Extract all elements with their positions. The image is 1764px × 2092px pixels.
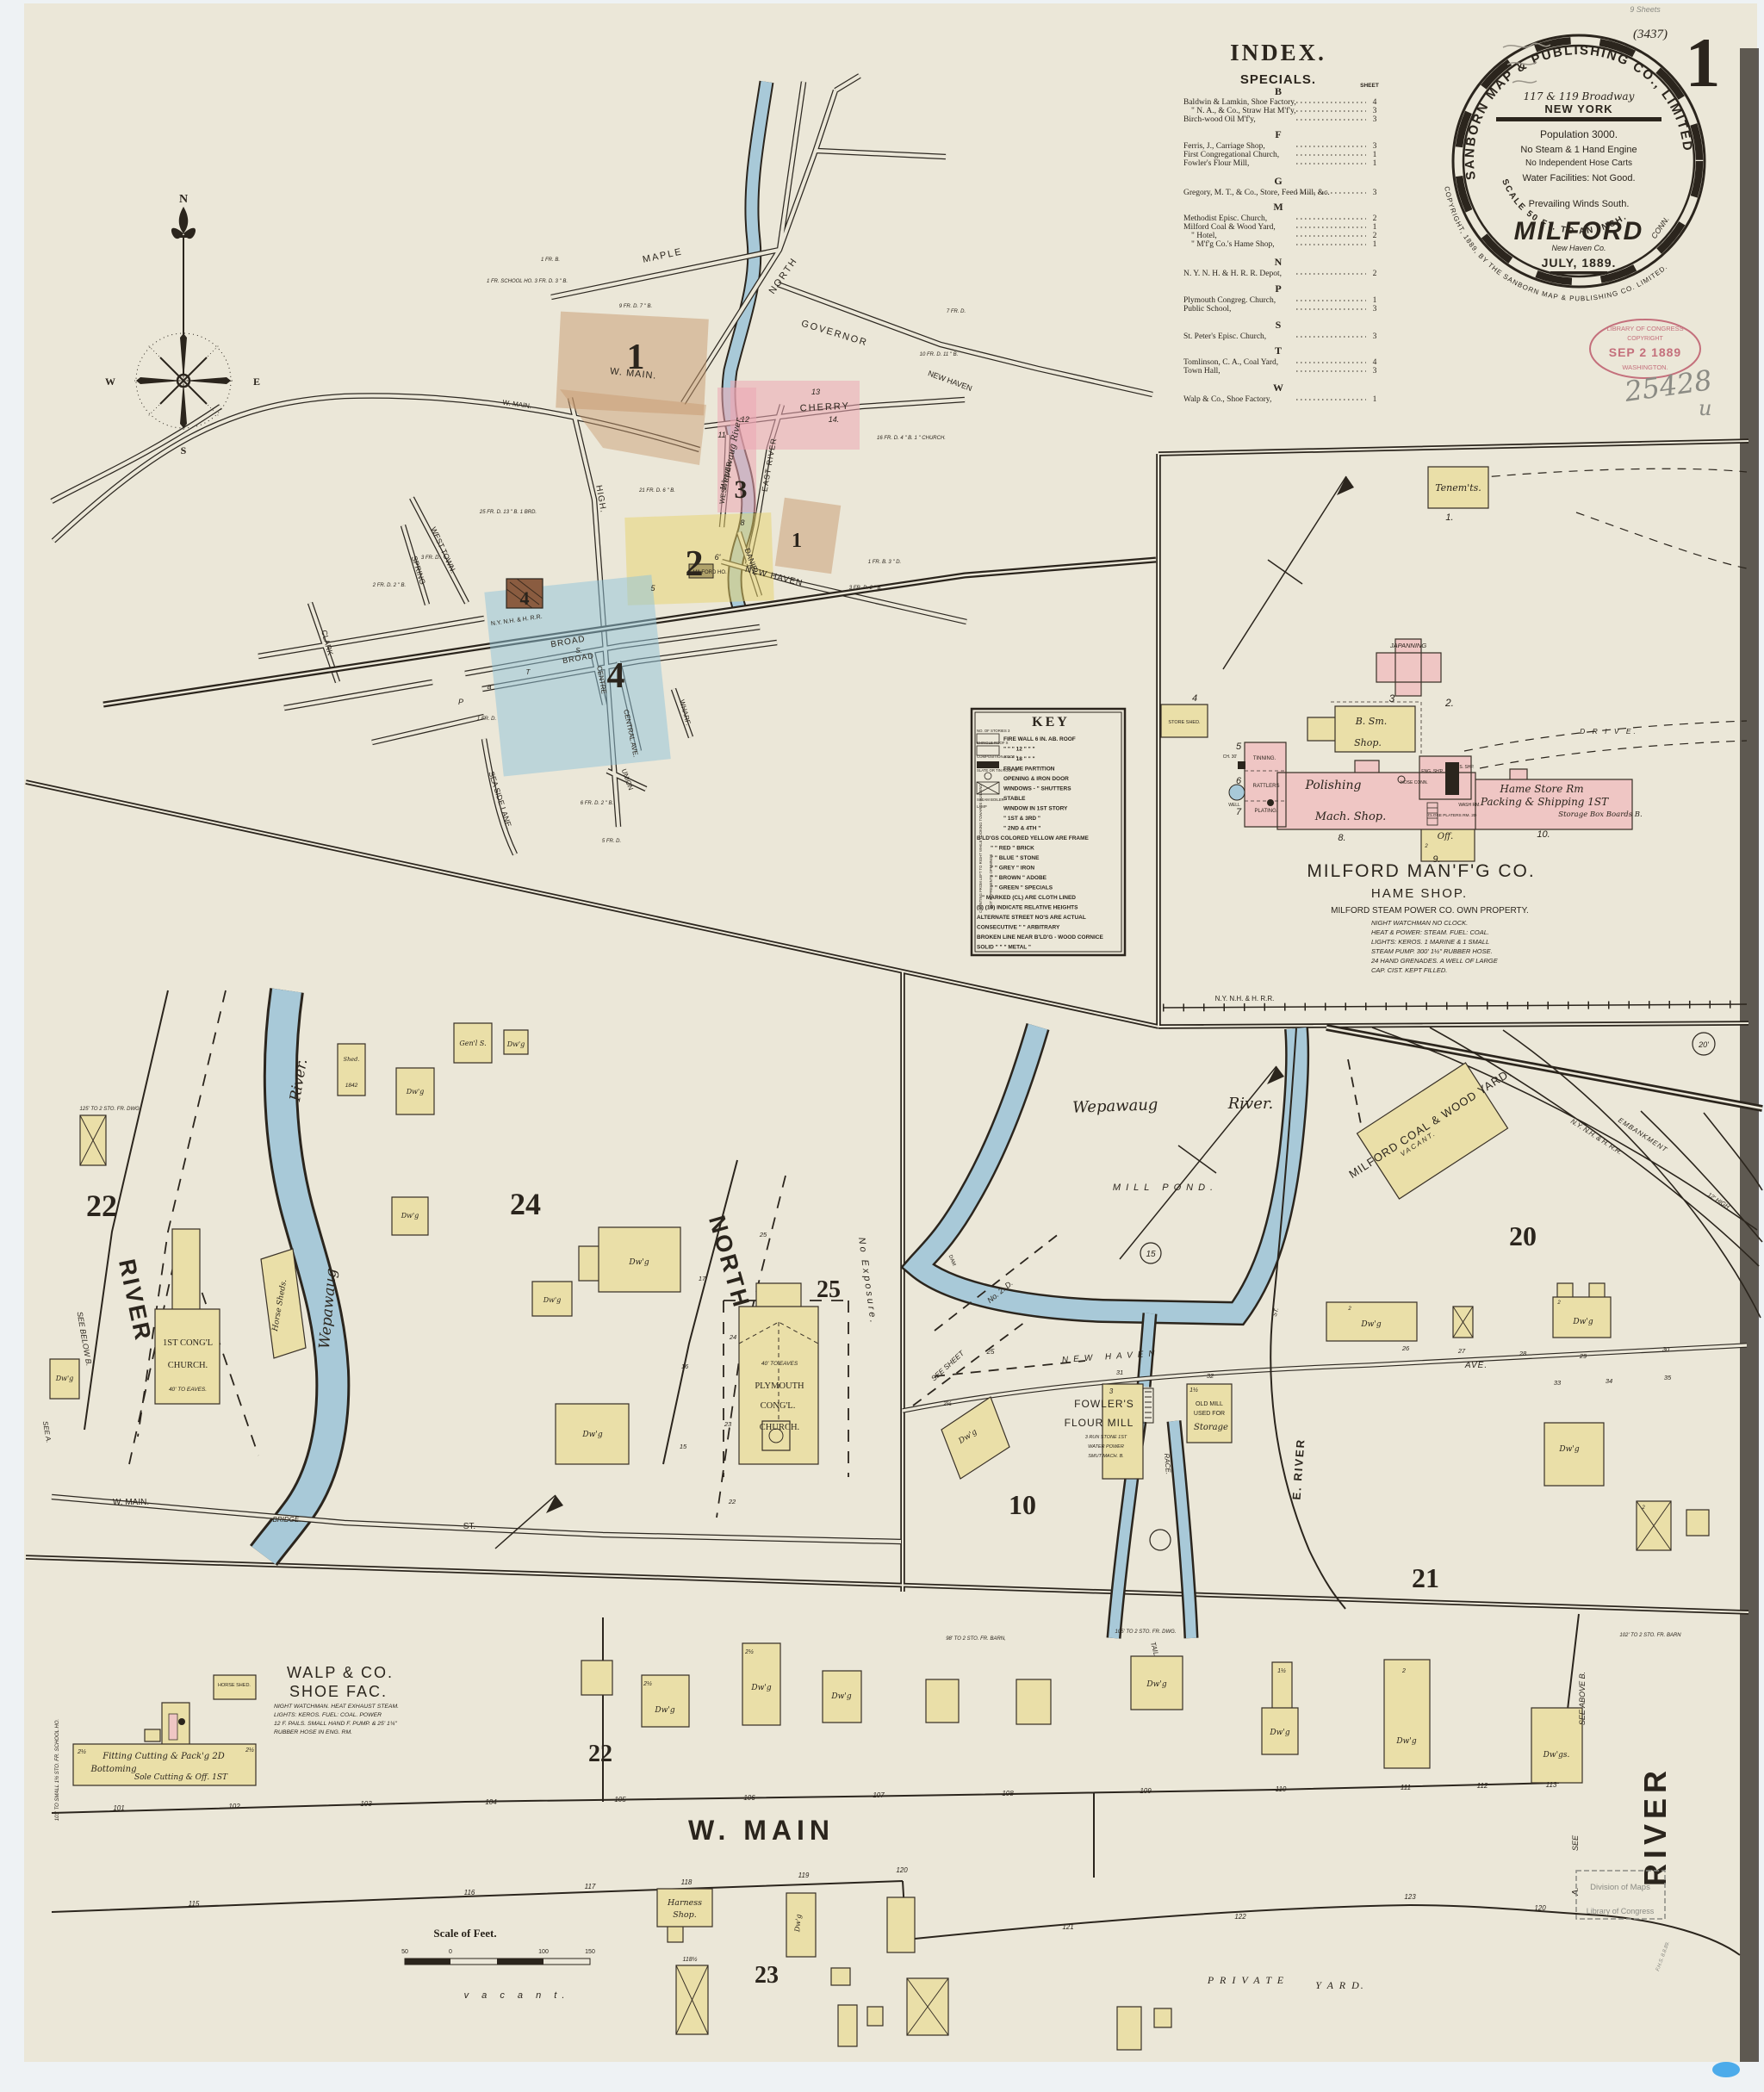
bldg-label: Dw'g [1572, 1318, 1593, 1326]
church-label: PLYMOUTH [755, 1381, 804, 1391]
page-edge-shadow [1740, 48, 1759, 2062]
district-number: 20 [1509, 1220, 1537, 1251]
index-sheet-col: SHEET [1360, 83, 1379, 89]
lot-number: 112 [1477, 1782, 1488, 1790]
plate-code: (3437) [1633, 28, 1668, 41]
see-above-label: SEE ABOVE B. [1578, 1672, 1587, 1725]
lot-number: 29 [1579, 1352, 1587, 1360]
scale-bar-block [497, 1959, 543, 1965]
bldg-label: WASH RM. [1458, 803, 1480, 808]
note: 125' TO 2 STO. FR. DWG. [80, 1107, 141, 1112]
fleur-crossbar [177, 235, 190, 238]
lot-number: 102 [228, 1803, 240, 1810]
inset-title: MILFORD MAN'F'G CO. [1307, 861, 1535, 881]
district-1b-number: 1 [792, 530, 802, 552]
town-hall-number: 4 [520, 587, 530, 609]
bldg-label: S. SHP. [1459, 765, 1474, 770]
lot-number: 111 [1401, 1784, 1411, 1791]
inset-chute [1238, 761, 1245, 769]
district-number: 23 [755, 1962, 779, 1989]
bldg-num: 3 [1389, 692, 1395, 705]
inset-well [1229, 785, 1245, 800]
bldg-label: Shop. [673, 1910, 696, 1920]
lot-number: 110 [1276, 1785, 1287, 1793]
factory-note: RUBBER HOSE IN ENG. RM. [274, 1729, 352, 1735]
key-row: " " " 18 " " " [1003, 756, 1035, 762]
inset-boiler-dot [1267, 799, 1274, 806]
bldg-num: 3 [1109, 1387, 1114, 1395]
church-label: CHURCH. [168, 1361, 208, 1370]
barn-note: 98' TO 2 STO. FR. BARN, [946, 1636, 1006, 1642]
lot-12: 12 [741, 415, 749, 424]
seal-water: Water Facilities: Not Good. [1522, 173, 1635, 183]
key-row: " 2ND & 4TH " [1003, 826, 1040, 832]
ov-note: 1 FR. D. [477, 717, 496, 722]
seal-county: New Haven Co. [1551, 244, 1606, 252]
bldg-num: 2½ [643, 1680, 652, 1687]
bldg-label: Shop. [1354, 737, 1382, 748]
division-stamp-line: Library of Congress [1587, 1907, 1655, 1915]
index-entry-sheet: 1 [1373, 395, 1377, 404]
milford-house-label: MILFORD HO. [693, 570, 727, 575]
bldg-label: Dw'g [406, 1088, 425, 1096]
lot-13: 13 [811, 388, 820, 396]
bldg-label: CH. 30' [1223, 754, 1238, 760]
bldg-label: Dw'g [1360, 1320, 1381, 1329]
lot-P: P [458, 698, 463, 706]
key-row: " " BROWN " ADOBE [991, 875, 1047, 881]
bldg-label: Dw'g [750, 1684, 771, 1692]
bldg-label: Tenem'ts. [1435, 482, 1481, 494]
bldg-label: B. Sm. [1355, 716, 1388, 727]
district-1-number: 1 [627, 338, 645, 377]
district-1b-tint [775, 498, 841, 574]
lot-number: 121 [1062, 1923, 1073, 1931]
bldg-num: 2½ [942, 1400, 952, 1407]
bldg-label: RATTLERS [1253, 784, 1280, 789]
bldg-label: Dw'g [55, 1375, 74, 1382]
bldg-num: 5 [1236, 742, 1242, 752]
key-row: FIRE WALL 6 IN. AB. ROOF [1003, 736, 1076, 742]
index-entry: Walp & Co., Shoe Factory, [1183, 395, 1271, 404]
margin-note: 103' TO SMALL 1½ STO. FR. SCHOOL HO. [54, 1719, 60, 1821]
bldg-label: Storage Box Boards B. [1558, 810, 1642, 819]
bldg-num: 8. [1338, 833, 1345, 843]
district-number: 24 [510, 1187, 541, 1221]
ov-note: 3 FR. D. [421, 556, 440, 561]
bldg-num: 2. [1444, 697, 1454, 709]
lot-number: 25 [759, 1231, 767, 1238]
ov-note: 7 FR. D. [947, 309, 966, 314]
district-3-number: 3 [735, 475, 748, 504]
index-entry: Tomlinson, C. A., Coal Yard, [1183, 358, 1278, 367]
scan-glare [1712, 2062, 1740, 2077]
lot-number: 117 [585, 1883, 596, 1890]
seal-hose: No Independent Hose Carts [1525, 158, 1632, 168]
lot-number: 108 [1002, 1790, 1014, 1797]
circled-number-text: 20' [1698, 1040, 1709, 1049]
inset-rr-label: N.Y. N.H. & H. R.R. [1215, 995, 1275, 1003]
sheet-number: 1 [1686, 23, 1721, 102]
lot-number: 113 [1546, 1781, 1557, 1789]
district-4-number: 4 [607, 656, 625, 696]
key-side-label-rot: COUNTING FROM LEFT TO RIGHT WHILE LOOKIN… [978, 784, 983, 913]
street-name: W. MAIN [688, 1815, 835, 1846]
lot-number: 23 [724, 1420, 732, 1428]
bldg-label: Mach. Shop. [1314, 810, 1387, 823]
lot-number: 24 [729, 1333, 736, 1341]
index-entry: Birch-wood Oil M'f'y, [1183, 115, 1256, 124]
ov-note: 10 FR. D. 11 " B. [920, 352, 959, 357]
bldg-label: Packing & Shipping 1ST [1480, 796, 1609, 808]
key-row: " MARKED (CL) ARE CLOTH LINED [982, 895, 1076, 901]
index-entry: " M'f'g Co.'s Hame Shop, [1191, 239, 1275, 249]
bldg-label: Sole Cutting & Off. 1ST [134, 1773, 228, 1782]
map-canvas: MAPLE NORTH GOVERNOR W. MAIN. W. MAIN. C… [0, 0, 1764, 2092]
circled-number-text: 15 [1146, 1250, 1156, 1259]
index-entry: " Hotel, [1191, 232, 1217, 240]
compass-n: N [179, 193, 188, 206]
index-entry-sheet: 2 [1373, 232, 1377, 240]
index-entry-sheet: 3 [1373, 107, 1377, 115]
bldg-label: Dw'g [793, 1914, 803, 1933]
street-label-ave: AVE. [1464, 1361, 1488, 1370]
factory-note: LIGHTS: KEROS. FUEL: COAL. POWER [274, 1712, 382, 1718]
index-entry-sheet: 3 [1373, 189, 1377, 197]
index-entry: N. Y. N. H. & H. R. R. Depot, [1183, 270, 1282, 278]
index-entry-sheet: 3 [1373, 305, 1377, 313]
drive-label: D R I V E. [1580, 727, 1638, 736]
key-row: " " " 12 " " " [1003, 747, 1035, 753]
bldg-label: Dw'g [543, 1296, 562, 1304]
key-title: KEY [1032, 715, 1070, 729]
accession-suffix: u [1699, 396, 1711, 420]
vacant-label: v a c a n t. [464, 1990, 570, 2001]
street-label-st: ST. [463, 1522, 475, 1531]
index-entry: Methodist Episc. Church, [1183, 214, 1267, 223]
bldg-label: JAPANNING [1389, 642, 1427, 649]
bldg-num: 7 [1236, 807, 1242, 817]
bldg-num: 10. [1537, 829, 1550, 840]
see-label: SEE [1571, 1834, 1580, 1851]
index-entry-sheet: 1 [1373, 296, 1377, 305]
index-entry: Gregory, M. T., & Co., Store, Feed Mill,… [1183, 189, 1330, 197]
bldg-label: Dw'gs. [1543, 1751, 1570, 1760]
bldg-num: 4 [1192, 693, 1197, 704]
ov-note: 9 FR. D. 7 " B. [619, 304, 652, 309]
index-letter: S [1276, 319, 1282, 331]
index-entry-sheet: 4 [1373, 98, 1377, 107]
key-row: CONSECUTIVE " " ARBITRARY [977, 925, 1060, 931]
bldg-num: 2 [1401, 1668, 1406, 1674]
church-label: 1ST CONG'L [163, 1338, 213, 1348]
lot-number: 16 [681, 1363, 689, 1370]
bldg-num: 6 [1236, 776, 1242, 786]
lot-number: 116 [464, 1889, 475, 1896]
bldg-label: Harness [667, 1898, 702, 1908]
bldg-label: Dw'g [628, 1258, 649, 1267]
seal-small-bar [1550, 271, 1607, 275]
scale-label: Scale of Feet. [433, 1927, 496, 1940]
index-entry-sheet: 2 [1373, 214, 1377, 223]
stamp-line3: SEP 2 1889 [1609, 345, 1681, 359]
seal-town: MILFORD [1514, 217, 1644, 245]
lot-number: 28 [1519, 1350, 1527, 1357]
lot-number: 27 [1457, 1347, 1466, 1355]
bldg-label: Dw'g [1269, 1729, 1289, 1737]
factory-title: WALP & CO. [287, 1664, 394, 1681]
index-letter: G [1274, 175, 1282, 187]
ov-note: 5 FR. D. [602, 839, 621, 844]
lot-number: 119 [798, 1872, 810, 1879]
bldg-label: Dw'g [401, 1212, 419, 1220]
bldg-label: Dw'g [1395, 1737, 1416, 1746]
bldg-label: TINNING. [1253, 756, 1276, 761]
river-name: Wepawaug [1072, 1096, 1158, 1116]
lot-number: 33 [1554, 1379, 1562, 1387]
index-letter: M [1273, 201, 1283, 213]
seal-date: JULY, 1889. [1542, 256, 1617, 270]
index-entry-sheet: 3 [1373, 115, 1377, 124]
mill-note: 3 RUN STONE 1ST [1085, 1435, 1127, 1440]
barn-note: 102' TO 2 STO. FR. BARN [1619, 1633, 1681, 1638]
index-entry: " N. A., & Co., Straw Hat M'f'y, [1191, 106, 1295, 115]
key-row: " " GREY " IRON [991, 866, 1034, 872]
index-entry: Town Hall, [1183, 367, 1221, 376]
index-letter: B [1275, 85, 1282, 97]
lot-number: 31 [1116, 1369, 1123, 1376]
ov-note: 6 FR. D. 2 " B. [581, 801, 613, 806]
index-entry: St. Peter's Episc. Church, [1183, 332, 1266, 341]
scale-tick: 50 [401, 1949, 408, 1955]
index-entry-sheet: 3 [1373, 142, 1377, 151]
lot-number: 32 [1207, 1372, 1214, 1380]
sanborn-map-sheet: MAPLE NORTH GOVERNOR W. MAIN. W. MAIN. C… [0, 0, 1764, 2092]
lot-S: S. [575, 647, 582, 655]
index-entry-sheet: 4 [1373, 358, 1377, 367]
index-entry-sheet: 3 [1373, 332, 1377, 341]
compass-w: W [105, 376, 115, 388]
key-legend: KEY NO. OF STORIES 3 SHINGLE ROOF X COMP… [972, 709, 1125, 955]
lot-number: 25 [986, 1348, 995, 1356]
lot-number: 105 [614, 1796, 626, 1803]
inset-note: HEAT & POWER: STEAM. FUEL: COAL. [1371, 928, 1489, 936]
seal-engine: No Steam & 1 Hand Engine [1520, 145, 1637, 155]
lot-number: 115 [189, 1900, 200, 1908]
bldg-label: Off. [1438, 832, 1453, 841]
factory-title: SHOE FAC. [289, 1683, 388, 1700]
bldg-label: Shed. [344, 1056, 360, 1063]
mill-label: FOWLER'S [1074, 1398, 1134, 1410]
inset-note: NIGHT WATCHMAN NO CLOCK. [1371, 919, 1468, 927]
key-side-label: NO. OF STORIES 3 [977, 729, 1010, 733]
key-row: WINDOW IN 1ST STORY [1003, 806, 1068, 812]
lot-number: 101 [113, 1804, 124, 1812]
district-number: 22 [86, 1189, 117, 1223]
index-title: INDEX. [1230, 40, 1326, 65]
bldg-label: Dw'g [581, 1431, 602, 1439]
mill-label: FLOUR MILL [1065, 1417, 1134, 1429]
lot-number: 122 [1234, 1913, 1246, 1921]
key-glyph-boiler [977, 761, 999, 768]
bldg-label: Dw'g [506, 1040, 525, 1048]
seal-city: NEW YORK [1544, 102, 1612, 115]
index-entry: Fowler's Flour Mill, [1183, 159, 1249, 168]
bldg-label: CLOSE PLATERS RM. 2D [1428, 813, 1477, 818]
lot-11: 11 [717, 431, 725, 439]
index-letter: F [1275, 128, 1281, 140]
sheets-note: 9 Sheets [1630, 5, 1661, 14]
lot-number: 123 [1404, 1893, 1416, 1901]
index-entry: Public School, [1183, 305, 1231, 313]
key-row: B'LD'GS COLORED YELLOW ARE FRAME [977, 835, 1090, 841]
lot-number: 35 [1664, 1374, 1672, 1381]
bldg-label: PLATING. [1255, 809, 1278, 814]
lot-number: 120 [1534, 1904, 1546, 1912]
bldg-label: Polishing [1305, 779, 1362, 792]
bldg-label: Fitting Cutting & Pack'g 2D [102, 1752, 224, 1761]
barn-note: 105' TO 2 STO. FR. DWG. [1115, 1630, 1177, 1635]
scale-tick: 150 [585, 1949, 595, 1955]
church-note: 40' TO EAVES [761, 1361, 798, 1367]
mill-note: SMUT MACH. B. [1088, 1454, 1124, 1459]
index-letter: P [1275, 282, 1281, 295]
street-label-wmain: W. MAIN. [113, 1498, 149, 1507]
private-yard-label: Y A R D. [1315, 1979, 1365, 1991]
key-row: " 1ST & 3RD " [1003, 816, 1040, 822]
index-entry: Baldwin & Lamkin, Shoe Factory, [1183, 98, 1296, 107]
lot-number: 30 [1662, 1345, 1670, 1353]
stamp-line1: LIBRARY OF CONGRESS [1606, 325, 1683, 332]
lot-number: 104 [485, 1798, 497, 1806]
scale-tick: 100 [538, 1949, 549, 1955]
index-entry-sheet: 1 [1373, 240, 1377, 249]
bldg-label: 1842 [345, 1083, 358, 1089]
bldg-num: 2 [1347, 1307, 1351, 1312]
bldg-label: STORE SHED. [1168, 720, 1201, 725]
district-number: 25 [817, 1276, 841, 1303]
index-entry: Milford Coal & Wood Yard, [1183, 222, 1276, 232]
factory-note: 12 F. PAILS. SMALL HAND F. PUMP. & 25' 1… [274, 1721, 397, 1727]
ov-note: 1 FR. B. [541, 258, 560, 263]
key-row: WINDOWS - " SHUTTERS [1003, 786, 1071, 792]
mill-note: WATER POWER [1088, 1444, 1124, 1450]
bldg-num: 2½ [744, 1648, 754, 1655]
lot-6: 6' [715, 553, 721, 562]
ov-note: 1 FR. SCHOOL HO. 3 FR. D. 3 " B. [487, 279, 568, 284]
seal-address: 117 & 119 Broadway [1524, 90, 1635, 102]
key-row: SOLID " " " METAL " [977, 945, 1031, 951]
district-number: 22 [588, 1741, 612, 1767]
ov-note: 1 FR. B. 3 " D. [868, 560, 901, 565]
street-label-bridge: BRIDGE. [273, 1516, 301, 1524]
index-entry-sheet: 2 [1373, 270, 1377, 278]
district-2-number: 2 [686, 544, 704, 584]
bldg-num: 1. [1445, 512, 1453, 523]
bldg-label: Storage [1194, 1423, 1228, 1432]
seal-winds: Prevailing Winds South. [1529, 199, 1630, 209]
bldg-label: Bottoming [90, 1765, 137, 1774]
key-row: ALTERNATE STREET NO'S ARE ACTUAL [977, 915, 1086, 921]
bldg-num: 118½ [683, 1956, 698, 1963]
bldg-label: ENG. SH'P. [1421, 769, 1444, 774]
church-note: 40' TO EAVES. [169, 1387, 207, 1393]
bldg-label: Dw'g [830, 1692, 851, 1701]
bldg-label: Gen'l S. [459, 1040, 486, 1047]
lot-number: 118 [681, 1878, 693, 1886]
key-row: OPENING & IRON DOOR [1003, 776, 1069, 782]
stamp-line2: COPYRIGHT [1627, 336, 1663, 342]
compass-e: E [253, 376, 260, 388]
seal-divider-bar [1496, 117, 1662, 121]
inset-note: CAP. CIST. KEPT FILLED. [1371, 966, 1447, 974]
inset-ownership: MILFORD STEAM POWER CO. OWN PROPERTY. [1331, 906, 1529, 916]
inset-chimney [1445, 762, 1459, 795]
ov-note: 3 FR. D. 2 " B. [849, 586, 882, 591]
factory-note: NIGHT WATCHMAN. HEAT EXHAUST STEAM. [274, 1704, 399, 1710]
lot-number: 106 [743, 1794, 755, 1802]
bldg-label: HOSE CONN. [1401, 780, 1428, 785]
bldg-num: 2½ [245, 1747, 254, 1754]
private-yard-label: P R I V A T E [1207, 1974, 1285, 1986]
index-letter: N [1275, 256, 1283, 268]
lot-number: 120 [896, 1866, 908, 1874]
bldg-label: Hame Store Rm [1499, 783, 1583, 795]
index-entry-sheet: 1 [1373, 159, 1377, 168]
index-entry: Ferris, J., Carriage Shop, [1183, 142, 1265, 151]
lot-number: 17 [699, 1275, 706, 1282]
inset-note: LIGHTS: KEROS. 1 MARINE & 1 SMALL [1371, 938, 1489, 946]
street-name-river: RIVER [1637, 1766, 1673, 1886]
ov-note: 2 FR. D. 2 " B. [372, 583, 406, 588]
river-name: River. [1227, 1095, 1273, 1113]
index-letter: T [1275, 345, 1282, 357]
index-entry-sheet: 3 [1373, 367, 1377, 376]
index-entry: Plymouth Congreg. Church, [1183, 296, 1276, 305]
lot-number: 22 [728, 1498, 736, 1505]
inset-subtitle: HAME SHOP. [1371, 886, 1468, 901]
key-row: " " BLUE " STONE [991, 855, 1040, 861]
church-label: CONG'L. [761, 1401, 796, 1411]
scale-tick: 0 [449, 1949, 452, 1955]
mill-pond-label: MILL POND. [1113, 1183, 1218, 1193]
bldg-label: Dw'g [1146, 1680, 1166, 1689]
lot-number: 26 [1401, 1344, 1410, 1352]
district-number: 10 [1009, 1489, 1036, 1520]
ov-note: 25 FR. D. 13 " B. 1 BRD. [479, 510, 537, 515]
boiler-room [169, 1714, 177, 1740]
key-row: " " RED " BRICK [991, 846, 1034, 852]
bldg-num: 1½ [1189, 1387, 1198, 1394]
lot-number: 15 [680, 1443, 687, 1450]
lot-8: 8 [740, 518, 744, 527]
bldg-num: 2 [1424, 844, 1428, 849]
ov-note: 21 FR. D. 6 " B. [638, 488, 675, 494]
lot-a: a [487, 682, 491, 691]
boiler-dot [178, 1718, 185, 1725]
key-row: BROKEN LINE NEAR B'LD'G - WOOD CORNICE [977, 934, 1103, 940]
index-letter: W [1273, 382, 1283, 394]
bldg-label: HORSE SHED. [218, 1683, 251, 1688]
church-label: CHURCH. [760, 1423, 799, 1432]
bldg-num: 2½ [77, 1748, 86, 1755]
compass-s: S [181, 444, 187, 456]
division-stamp-line: Division of Maps [1590, 1883, 1650, 1892]
scale-bar-block [405, 1959, 450, 1965]
key-row: (5) (19) INDICATE RELATIVE HEIGHTS [977, 905, 1078, 911]
inset-note: 24 HAND GRENADES. A WELL OF LARGE [1370, 957, 1499, 965]
bldg-label: USED FOR [1194, 1411, 1225, 1417]
